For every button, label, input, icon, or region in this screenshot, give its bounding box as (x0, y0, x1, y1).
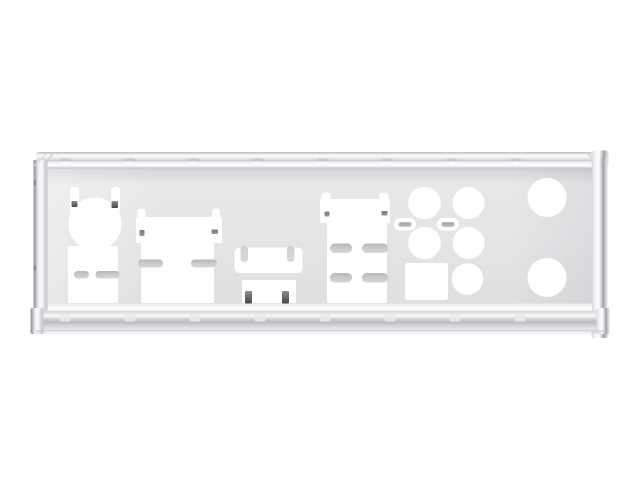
audio-jack-hole (408, 187, 441, 220)
metal-clip-mark (382, 211, 388, 216)
ground-tongue (138, 260, 163, 268)
stamp-dimple-highlight (447, 161, 457, 163)
left-flange (34, 154, 48, 330)
stamp-dimple-highlight (511, 161, 521, 163)
audio-jack-hole (453, 187, 485, 219)
round-vent-hole (528, 258, 567, 297)
drop-shadow (36, 330, 604, 335)
ground-tongue (362, 273, 388, 283)
right-flange-strip (592, 158, 608, 330)
fold-notch (320, 315, 331, 322)
vent-hole-bottom (528, 258, 567, 297)
audio-jack-hole (408, 227, 441, 260)
ground-tongue (330, 244, 352, 254)
hdmi-top-hook-right (287, 246, 295, 262)
stamp-dimple-highlight (60, 161, 70, 163)
fold-notch (450, 315, 461, 322)
ground-tongue (96, 271, 120, 279)
ground-tongue (191, 260, 217, 268)
stamp-dimple-highlight (318, 161, 328, 163)
edge-clip-mark (34, 180, 36, 186)
dvi-upper-hole (136, 217, 222, 243)
plate-face-sheen (46, 165, 593, 312)
dvi-port-cutout (136, 209, 222, 304)
fold-notch (60, 315, 71, 322)
hdmi-port-cutout (235, 246, 303, 273)
metal-clip-right (282, 291, 289, 304)
metal-clip-mark (212, 230, 219, 235)
stamp-dimple-highlight (253, 161, 263, 163)
lan-upper-hole (320, 199, 390, 223)
dvi-lower-hole (141, 242, 214, 303)
usb-lower-hole (327, 222, 387, 303)
round-vent-hole (528, 178, 567, 217)
fold-notch (385, 315, 396, 322)
edge-clip-mark (34, 265, 36, 271)
hdmi-top-hook-left (241, 246, 249, 262)
left-flange-strip (34, 160, 48, 330)
bottom-flange (31, 308, 610, 335)
optical-spdif-hole (405, 263, 448, 300)
fold-notch (515, 315, 526, 322)
fold-notch (125, 315, 136, 322)
stamp-dimple-highlight (125, 161, 135, 163)
lan-usb-stack-cutout (320, 193, 390, 304)
io-shield-photo (0, 0, 640, 480)
metal-clip-left (245, 291, 252, 304)
latch-tab (399, 222, 412, 227)
stamp-dimple-highlight (382, 161, 392, 163)
stamp-dimple-highlight (189, 161, 199, 163)
ps2-metal-clip-left (72, 201, 78, 207)
product-photo-canvas (0, 0, 640, 480)
metal-clip-mark (325, 212, 330, 217)
audio-jack-hole (452, 263, 484, 295)
ground-tongue (330, 273, 352, 283)
top-flange (36, 152, 604, 169)
vent-hole-top (528, 178, 567, 217)
fold-notch (255, 315, 266, 322)
ground-tongue (74, 271, 89, 279)
ground-tongue (362, 244, 388, 254)
fold-notch (190, 315, 201, 322)
audio-jack-hole (453, 227, 485, 259)
displayport-cutout (242, 280, 296, 304)
ps2-metal-clip-right (112, 201, 119, 208)
usb-pair-cutout (68, 246, 120, 303)
latch-tab (442, 222, 455, 227)
metal-clip-mark (140, 230, 145, 236)
